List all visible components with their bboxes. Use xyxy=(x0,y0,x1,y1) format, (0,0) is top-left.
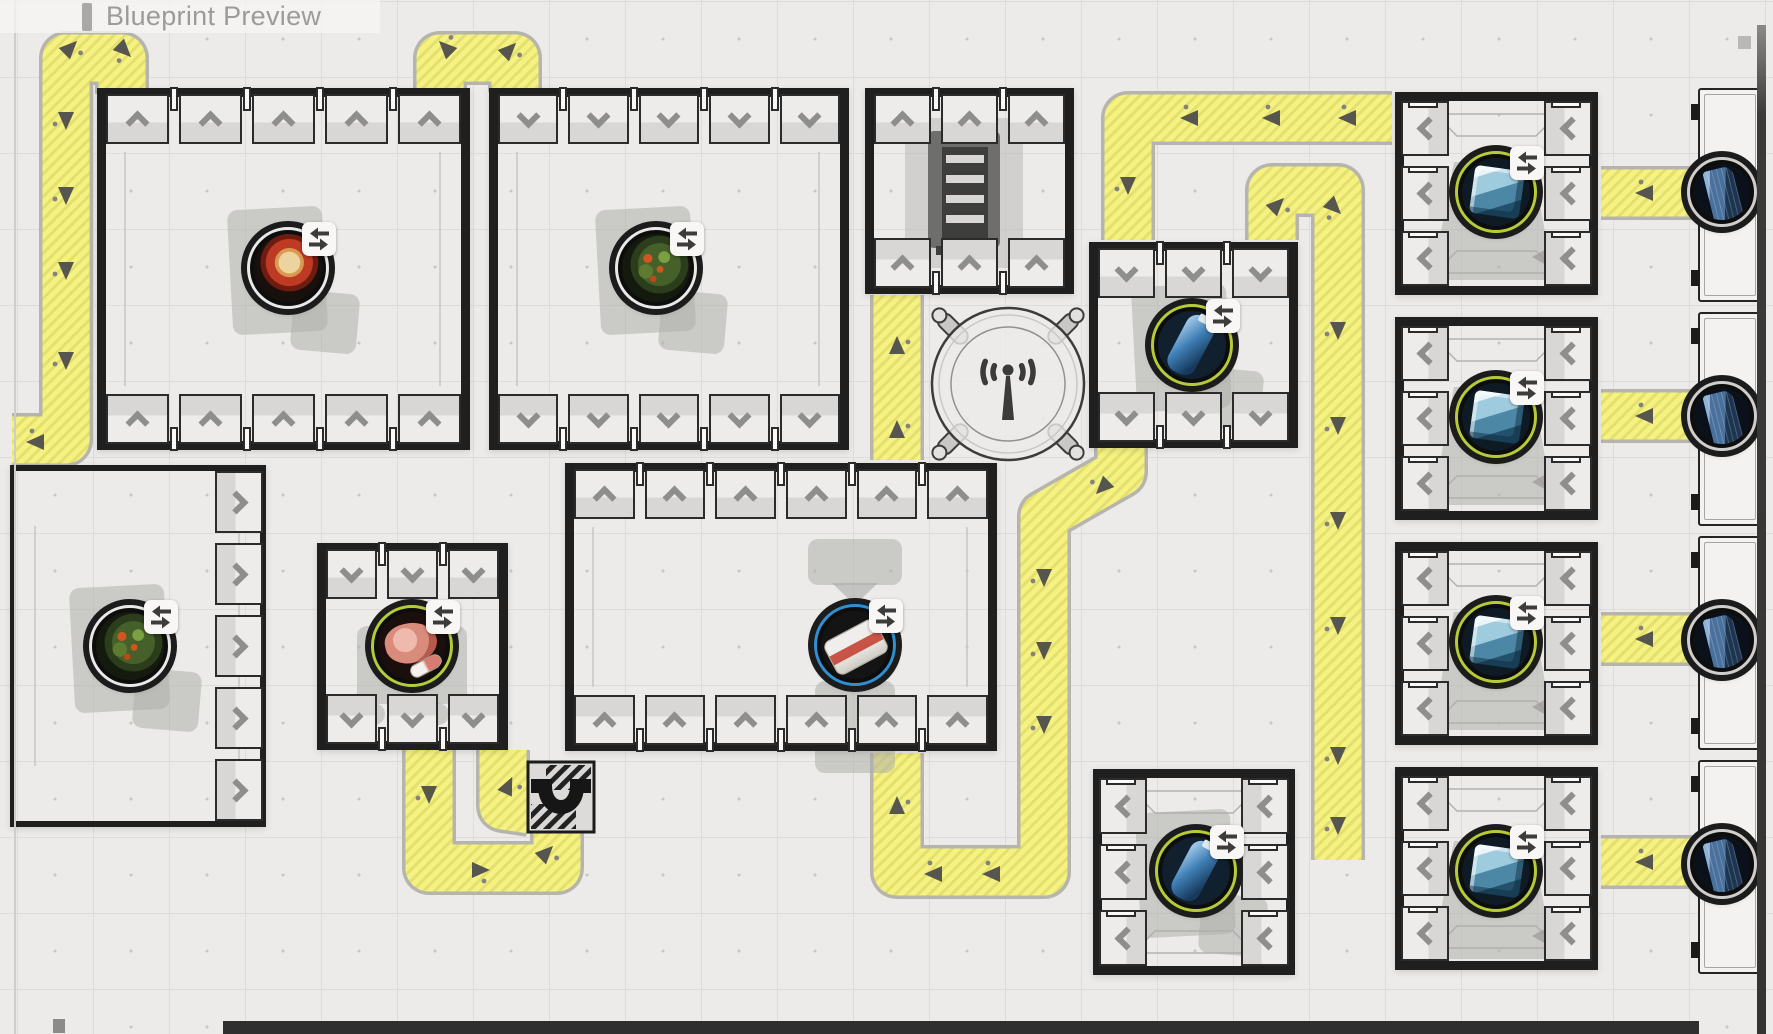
tower-shape xyxy=(1702,837,1744,892)
item-ice-block-2[interactable] xyxy=(1455,376,1537,458)
transfer-icon xyxy=(670,222,704,256)
transfer-icon xyxy=(1510,371,1544,405)
room-corner-line xyxy=(516,152,518,386)
transfer-icon xyxy=(1206,299,1240,333)
wall-peg xyxy=(316,427,324,451)
dock-stub xyxy=(1691,270,1700,286)
chevron-left-icon xyxy=(1114,860,1138,884)
shelf[interactable] xyxy=(927,695,988,745)
shelf[interactable] xyxy=(215,543,263,605)
wall-peg xyxy=(777,462,785,486)
chevron-left-icon xyxy=(1416,406,1440,430)
shelf[interactable] xyxy=(387,694,438,744)
title-text: Blueprint Preview xyxy=(106,1,321,32)
chevron-down-icon xyxy=(1181,402,1205,426)
wall-peg xyxy=(636,462,644,486)
room-corner-line xyxy=(818,152,820,386)
wall-peg xyxy=(439,542,447,566)
shelf-tick xyxy=(1106,778,1136,785)
wall-peg xyxy=(559,427,567,451)
chevron-left-icon xyxy=(1416,791,1440,815)
chevron-left-icon xyxy=(1114,926,1138,950)
chevron-up-icon xyxy=(592,485,616,509)
shelf[interactable] xyxy=(325,94,388,144)
chevron-left-icon xyxy=(1416,631,1440,655)
chevron-down-icon xyxy=(400,704,424,728)
shelf[interactable] xyxy=(1401,776,1449,831)
shelf[interactable] xyxy=(179,394,242,444)
wall-peg xyxy=(630,427,638,451)
chevron-left-icon xyxy=(1416,921,1440,945)
wall-peg xyxy=(700,87,708,111)
transfer-icon xyxy=(1510,146,1544,180)
shelf[interactable] xyxy=(1544,231,1592,286)
chevron-left-icon xyxy=(1559,116,1583,140)
shelf[interactable] xyxy=(498,94,558,144)
skyscraper-icon xyxy=(1694,164,1750,220)
chevron-up-icon xyxy=(344,410,368,434)
transfer-icon xyxy=(869,599,903,633)
shelf-tick xyxy=(1551,681,1581,688)
wall-peg xyxy=(932,87,940,111)
shelf[interactable] xyxy=(179,94,242,144)
wall-peg xyxy=(1156,425,1164,449)
item-dock-crate-3[interactable] xyxy=(1687,605,1757,675)
chevron-down-icon xyxy=(1248,402,1272,426)
wall-peg xyxy=(170,87,178,111)
chevron-left-icon xyxy=(1416,696,1440,720)
chevron-left-icon xyxy=(1559,921,1583,945)
chevron-left-icon xyxy=(1559,471,1583,495)
shelf[interactable] xyxy=(1098,248,1155,298)
chevron-down-icon xyxy=(516,104,540,128)
shelf[interactable] xyxy=(1401,166,1449,221)
transfer-arrows-icon xyxy=(1514,149,1540,177)
shelf[interactable] xyxy=(715,469,776,519)
shelf[interactable] xyxy=(1544,101,1592,156)
shelf[interactable] xyxy=(927,469,988,519)
shelf-tick xyxy=(1551,456,1581,463)
chevron-up-icon xyxy=(946,485,970,509)
tower-shape xyxy=(1702,165,1744,220)
chevron-up-icon xyxy=(663,485,687,509)
page-title: Blueprint Preview xyxy=(82,1,321,32)
shelf[interactable] xyxy=(715,695,776,745)
item-tomato-dish[interactable] xyxy=(247,227,329,309)
tower-shape xyxy=(1702,613,1744,668)
chevron-down-icon xyxy=(339,559,363,583)
chevron-up-icon xyxy=(875,711,899,735)
transfer-icon xyxy=(1510,825,1544,859)
dock-stub xyxy=(1691,718,1700,734)
shelf[interactable] xyxy=(252,94,315,144)
shelf[interactable] xyxy=(1241,844,1289,900)
chevron-left-icon xyxy=(1416,181,1440,205)
transfer-icon xyxy=(426,600,460,634)
shelf[interactable] xyxy=(1544,841,1592,896)
wall-peg xyxy=(389,427,397,451)
transfer-arrows-icon xyxy=(306,225,332,253)
chevron-down-icon xyxy=(798,404,822,428)
chevron-down-icon xyxy=(461,559,485,583)
shelf[interactable] xyxy=(857,695,918,745)
chevron-left-icon xyxy=(1559,566,1583,590)
shelf[interactable] xyxy=(574,469,635,519)
wall-peg xyxy=(848,462,856,486)
shelf[interactable] xyxy=(387,549,438,599)
shelf[interactable] xyxy=(1401,231,1449,286)
shelf[interactable] xyxy=(709,394,769,444)
object-layer xyxy=(0,0,1773,1034)
chevron-up-icon xyxy=(957,254,981,278)
shelf-tick xyxy=(1408,616,1438,623)
wall-peg xyxy=(848,728,856,752)
chevron-up-icon xyxy=(890,110,914,134)
shelf[interactable] xyxy=(1401,841,1449,896)
shelf-tick xyxy=(1551,326,1581,333)
shelf[interactable] xyxy=(786,469,847,519)
chevron-down-icon xyxy=(1248,258,1272,282)
dock-stub xyxy=(1691,328,1700,344)
shelf-tick xyxy=(1408,776,1438,783)
shelf[interactable] xyxy=(1099,844,1147,900)
shelf[interactable] xyxy=(1544,681,1592,736)
chevron-left-icon xyxy=(1559,246,1583,270)
wall-peg xyxy=(316,87,324,111)
shelf[interactable] xyxy=(398,394,461,444)
wall-peg xyxy=(999,271,1007,295)
shelf-tick xyxy=(1106,844,1136,851)
shelf[interactable] xyxy=(1165,248,1222,298)
wall-peg xyxy=(630,87,638,111)
transfer-icon xyxy=(302,222,336,256)
shelf[interactable] xyxy=(398,94,461,144)
item-water-bottle-north[interactable] xyxy=(1151,304,1233,386)
transfer-arrows-icon xyxy=(873,602,899,630)
shelf[interactable] xyxy=(639,394,699,444)
shelf[interactable] xyxy=(1544,906,1592,961)
shelf[interactable] xyxy=(1544,616,1592,671)
room-packing-hall[interactable] xyxy=(565,463,997,751)
shelf[interactable] xyxy=(857,469,918,519)
dock-stub xyxy=(1691,494,1700,510)
shelf-tick xyxy=(1408,681,1438,688)
chevron-up-icon xyxy=(417,110,441,134)
chevron-left-icon xyxy=(1559,631,1583,655)
chevron-up-icon xyxy=(1024,254,1048,278)
chevron-down-icon xyxy=(1181,258,1205,282)
dock-stub xyxy=(1691,104,1700,120)
shelf[interactable] xyxy=(568,94,628,144)
chevron-up-icon xyxy=(946,711,970,735)
chevron-left-icon xyxy=(1416,471,1440,495)
transfer-arrows-icon xyxy=(1214,828,1240,856)
shelf[interactable] xyxy=(780,94,840,144)
wall-peg xyxy=(559,87,567,111)
shelf[interactable] xyxy=(941,238,998,288)
item-meat-cut[interactable] xyxy=(371,605,453,687)
room-corner-line xyxy=(124,152,126,386)
transfer-arrows-icon xyxy=(1210,302,1236,330)
chevron-up-icon xyxy=(804,711,828,735)
shelf-tick xyxy=(1551,776,1581,783)
shelf[interactable] xyxy=(568,394,628,444)
shelf[interactable] xyxy=(786,695,847,745)
shelf[interactable] xyxy=(1544,391,1592,446)
chevron-up-icon xyxy=(198,110,222,134)
transfer-arrows-icon xyxy=(1514,828,1540,856)
shelf-tick xyxy=(1551,391,1581,398)
wall-peg xyxy=(918,462,926,486)
chevron-down-icon xyxy=(657,404,681,428)
shelf[interactable] xyxy=(874,238,931,288)
shelf[interactable] xyxy=(215,687,263,749)
shelf-tick xyxy=(1551,231,1581,238)
item-water-bottle-south[interactable] xyxy=(1155,830,1237,912)
dock-stub xyxy=(1691,776,1700,792)
item-packaged-goods[interactable] xyxy=(814,604,896,686)
shelf[interactable] xyxy=(215,615,263,677)
chevron-right-icon xyxy=(224,562,248,586)
shelf[interactable] xyxy=(325,394,388,444)
shelf[interactable] xyxy=(252,394,315,444)
chevron-down-icon xyxy=(1114,402,1138,426)
item-ice-block-1[interactable] xyxy=(1455,151,1537,233)
transfer-icon xyxy=(144,600,178,634)
chevron-left-icon xyxy=(1559,341,1583,365)
chevron-up-icon xyxy=(734,485,758,509)
shelf[interactable] xyxy=(941,94,998,144)
shelf[interactable] xyxy=(1544,326,1592,381)
shelf-tick xyxy=(1248,778,1278,785)
title-bar-icon xyxy=(82,3,92,31)
shelf[interactable] xyxy=(448,694,499,744)
shelf[interactable] xyxy=(1099,910,1147,966)
chevron-left-icon xyxy=(1559,181,1583,205)
shelf[interactable] xyxy=(574,695,635,745)
shelf-tick xyxy=(1408,166,1438,173)
chevron-up-icon xyxy=(663,711,687,735)
chevron-down-icon xyxy=(339,704,363,728)
shelf[interactable] xyxy=(1241,910,1289,966)
chevron-up-icon xyxy=(957,110,981,134)
item-ice-block-3[interactable] xyxy=(1455,601,1537,683)
shelf[interactable] xyxy=(1401,681,1449,736)
wall-peg xyxy=(700,427,708,451)
room-corner-line xyxy=(439,152,441,386)
shelf[interactable] xyxy=(106,94,169,144)
shelf[interactable] xyxy=(215,759,263,821)
chevron-left-icon xyxy=(1256,794,1280,818)
blueprint-canvas[interactable]: Blueprint Preview xyxy=(0,0,1773,1034)
shelf[interactable] xyxy=(780,394,840,444)
transfer-icon xyxy=(1210,825,1244,859)
shelf-tick xyxy=(1408,101,1438,108)
chevron-right-icon xyxy=(224,634,248,658)
shelf[interactable] xyxy=(498,394,558,444)
chevron-up-icon xyxy=(271,110,295,134)
wall-peg xyxy=(439,727,447,751)
shelf-tick xyxy=(1408,841,1438,848)
tower-shape xyxy=(1702,389,1744,444)
shelf[interactable] xyxy=(645,695,706,745)
chevron-down-icon xyxy=(587,404,611,428)
chevron-right-icon xyxy=(224,490,248,514)
shelf-tick xyxy=(1551,166,1581,173)
shelf-tick xyxy=(1248,844,1278,851)
wall-peg xyxy=(636,728,644,752)
skyscraper-icon xyxy=(1694,612,1750,668)
chevron-up-icon xyxy=(125,110,149,134)
shelf[interactable] xyxy=(326,694,377,744)
shelf[interactable] xyxy=(874,94,931,144)
chevron-left-icon xyxy=(1114,794,1138,818)
chevron-left-icon xyxy=(1256,926,1280,950)
dock-stub xyxy=(1691,552,1700,568)
chevron-down-icon xyxy=(587,104,611,128)
shelf[interactable] xyxy=(1544,166,1592,221)
room-corner-line xyxy=(34,526,36,766)
shelf-tick xyxy=(1408,456,1438,463)
chevron-left-icon xyxy=(1559,856,1583,880)
chevron-left-icon xyxy=(1256,860,1280,884)
chevron-up-icon xyxy=(734,711,758,735)
room-corner-line xyxy=(966,527,968,687)
wall-peg xyxy=(918,728,926,752)
shelf-tick xyxy=(1551,101,1581,108)
wall-peg xyxy=(378,727,386,751)
shelf[interactable] xyxy=(1232,392,1289,442)
chevron-up-icon xyxy=(125,410,149,434)
shelf[interactable] xyxy=(1401,101,1449,156)
chevron-down-icon xyxy=(727,104,751,128)
wall-peg xyxy=(243,427,251,451)
chevron-down-icon xyxy=(657,104,681,128)
shelf[interactable] xyxy=(709,94,769,144)
skyscraper-icon xyxy=(1694,836,1750,892)
shelf-tick xyxy=(1106,910,1136,917)
chevron-left-icon xyxy=(1559,791,1583,815)
shelf[interactable] xyxy=(326,549,377,599)
shelf[interactable] xyxy=(1098,392,1155,442)
wall-peg xyxy=(932,271,940,295)
shelf-tick xyxy=(1408,326,1438,333)
wall-peg xyxy=(771,87,779,111)
dock-stub xyxy=(1691,942,1700,958)
item-ice-block-4[interactable] xyxy=(1455,830,1537,912)
wall-peg xyxy=(777,728,785,752)
shelf[interactable] xyxy=(1008,238,1065,288)
wall-peg xyxy=(1156,241,1164,265)
room-corner-line xyxy=(592,527,594,687)
shelf[interactable] xyxy=(215,471,263,533)
shelf[interactable] xyxy=(1241,778,1289,834)
item-herb-plant-west[interactable] xyxy=(89,605,171,687)
wall-peg xyxy=(1223,241,1231,265)
room-kitchen-store[interactable] xyxy=(865,88,1074,294)
wall-peg xyxy=(378,542,386,566)
chevron-down-icon xyxy=(1114,258,1138,282)
chevron-left-icon xyxy=(1416,246,1440,270)
shelf[interactable] xyxy=(1401,391,1449,446)
shelf[interactable] xyxy=(1401,456,1449,511)
transfer-arrows-icon xyxy=(674,225,700,253)
shelf[interactable] xyxy=(1401,616,1449,671)
chevron-left-icon xyxy=(1559,406,1583,430)
chevron-left-icon xyxy=(1416,341,1440,365)
wall-peg xyxy=(706,462,714,486)
transfer-arrows-icon xyxy=(1514,374,1540,402)
shelf[interactable] xyxy=(1165,392,1222,442)
wall-peg xyxy=(1223,425,1231,449)
chevron-up-icon xyxy=(875,485,899,509)
chevron-down-icon xyxy=(516,404,540,428)
chevron-left-icon xyxy=(1416,116,1440,140)
shelf-tick xyxy=(1551,551,1581,558)
wall-peg xyxy=(706,728,714,752)
shelf[interactable] xyxy=(1544,456,1592,511)
chevron-right-icon xyxy=(224,778,248,802)
chevron-right-icon xyxy=(224,706,248,730)
wall-peg xyxy=(389,87,397,111)
shelf[interactable] xyxy=(1401,906,1449,961)
item-herb-plant[interactable] xyxy=(615,227,697,309)
shelf[interactable] xyxy=(1099,778,1147,834)
wall-peg xyxy=(999,87,1007,111)
shelf[interactable] xyxy=(639,94,699,144)
chevron-up-icon xyxy=(344,110,368,134)
shelf-tick xyxy=(1408,231,1438,238)
shelf[interactable] xyxy=(106,394,169,444)
wall-peg xyxy=(170,427,178,451)
shelf[interactable] xyxy=(1232,248,1289,298)
shelf[interactable] xyxy=(645,469,706,519)
shelf[interactable] xyxy=(1544,551,1592,606)
chevron-up-icon xyxy=(804,485,828,509)
chevron-up-icon xyxy=(890,254,914,278)
wall-peg xyxy=(243,87,251,111)
chevron-up-icon xyxy=(417,410,441,434)
transfer-arrows-icon xyxy=(430,603,456,631)
shelf-tick xyxy=(1248,910,1278,917)
chevron-down-icon xyxy=(461,704,485,728)
shelf[interactable] xyxy=(1401,326,1449,381)
item-dock-crate-4[interactable] xyxy=(1687,829,1757,899)
shelf[interactable] xyxy=(1008,94,1065,144)
shelf[interactable] xyxy=(1544,776,1592,831)
shelf-tick xyxy=(1408,551,1438,558)
transfer-icon xyxy=(1510,596,1544,630)
chevron-up-icon xyxy=(592,711,616,735)
item-dock-crate-2[interactable] xyxy=(1687,381,1757,451)
chevron-down-icon xyxy=(798,104,822,128)
shelf[interactable] xyxy=(448,549,499,599)
shelf-tick xyxy=(1408,906,1438,913)
shelf-tick xyxy=(1551,906,1581,913)
chevron-left-icon xyxy=(1416,856,1440,880)
shelf-tick xyxy=(1408,391,1438,398)
chevron-up-icon xyxy=(271,410,295,434)
chevron-down-icon xyxy=(727,404,751,428)
chevron-up-icon xyxy=(198,410,222,434)
shelf-tick xyxy=(1551,616,1581,623)
chevron-up-icon xyxy=(1024,110,1048,134)
item-dock-crate-1[interactable] xyxy=(1687,157,1757,227)
shelf[interactable] xyxy=(1401,551,1449,606)
skyscraper-icon xyxy=(1694,388,1750,444)
transfer-arrows-icon xyxy=(1514,599,1540,627)
wall-peg xyxy=(771,427,779,451)
